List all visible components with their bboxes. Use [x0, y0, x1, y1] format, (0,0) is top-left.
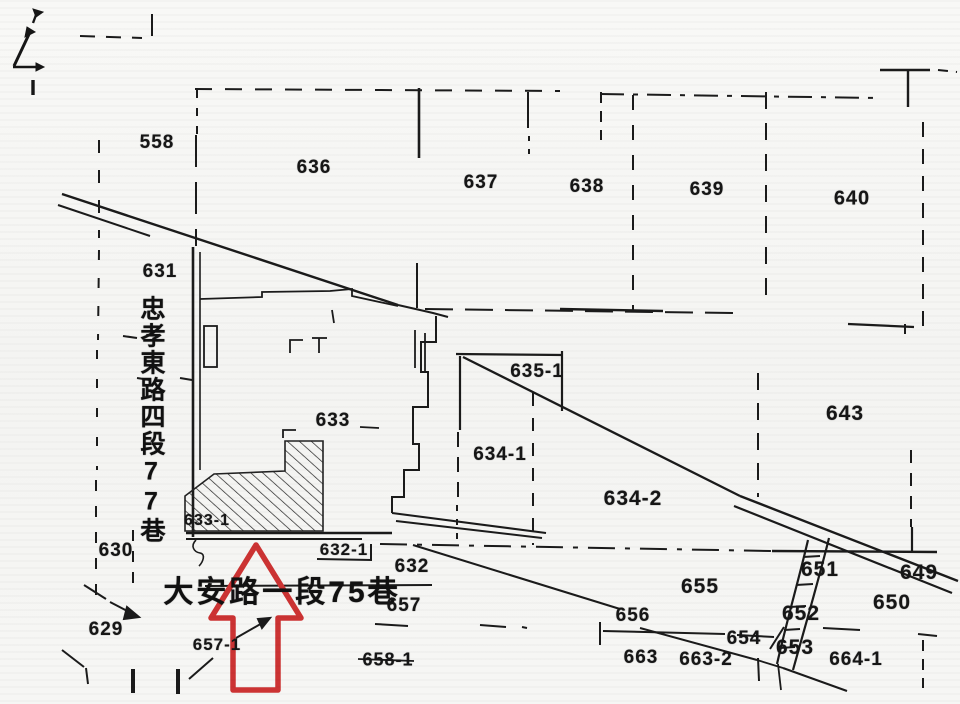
parcel-label-630: 630 [99, 540, 134, 562]
parcel-label-655: 655 [681, 575, 719, 599]
parcel-label-643: 643 [826, 402, 864, 426]
parcel-label-635-1: 635-1 [510, 361, 564, 383]
parcel-label-657: 657 [387, 595, 422, 617]
parcel-label-633: 633 [316, 410, 351, 432]
parcel-label-558: 558 [140, 132, 175, 154]
parcel-label-656: 656 [616, 605, 651, 627]
parcel-label-640: 640 [834, 188, 870, 211]
parcel-label-629: 629 [89, 619, 124, 641]
parcel-label-652: 652 [782, 602, 820, 626]
parcel-label-634-1: 634-1 [473, 444, 527, 466]
parcel-label-637: 637 [464, 172, 499, 194]
parcel-label-664-1: 664-1 [829, 649, 883, 671]
parcel-label-663: 663 [624, 647, 659, 669]
parcel-label-654: 654 [727, 628, 762, 650]
parcel-label-651: 651 [801, 558, 839, 582]
parcel-label-653: 653 [776, 636, 814, 660]
parcel-label-631: 631 [143, 261, 178, 283]
parcel-label-639: 639 [690, 179, 725, 201]
parcel-label-663-2: 663-2 [679, 649, 733, 671]
parcel-label-650: 650 [873, 591, 911, 615]
parcel-label-638: 638 [570, 176, 605, 198]
parcel-label-657-1: 657-1 [193, 635, 241, 655]
parcel-label-632-1: 632-1 [320, 540, 368, 560]
parcel-label-636: 636 [297, 157, 332, 179]
parcel-label-649: 649 [900, 561, 938, 585]
north-arrow-icon [13, 9, 44, 95]
street-name-horizontal: 大安路一段75巷 [163, 567, 400, 611]
parcel-label-658-1: 658-1 [362, 650, 413, 671]
cadastral-map: 忠孝東路四段77巷 大安路一段75巷 558636637638639640631… [0, 0, 960, 704]
parcel-label-632: 632 [395, 556, 430, 578]
parcel-label-634-2: 634-2 [604, 487, 663, 511]
street-name-vertical: 忠孝東路四段77巷 [133, 296, 169, 545]
parcel-label-633-1: 633-1 [184, 512, 230, 530]
